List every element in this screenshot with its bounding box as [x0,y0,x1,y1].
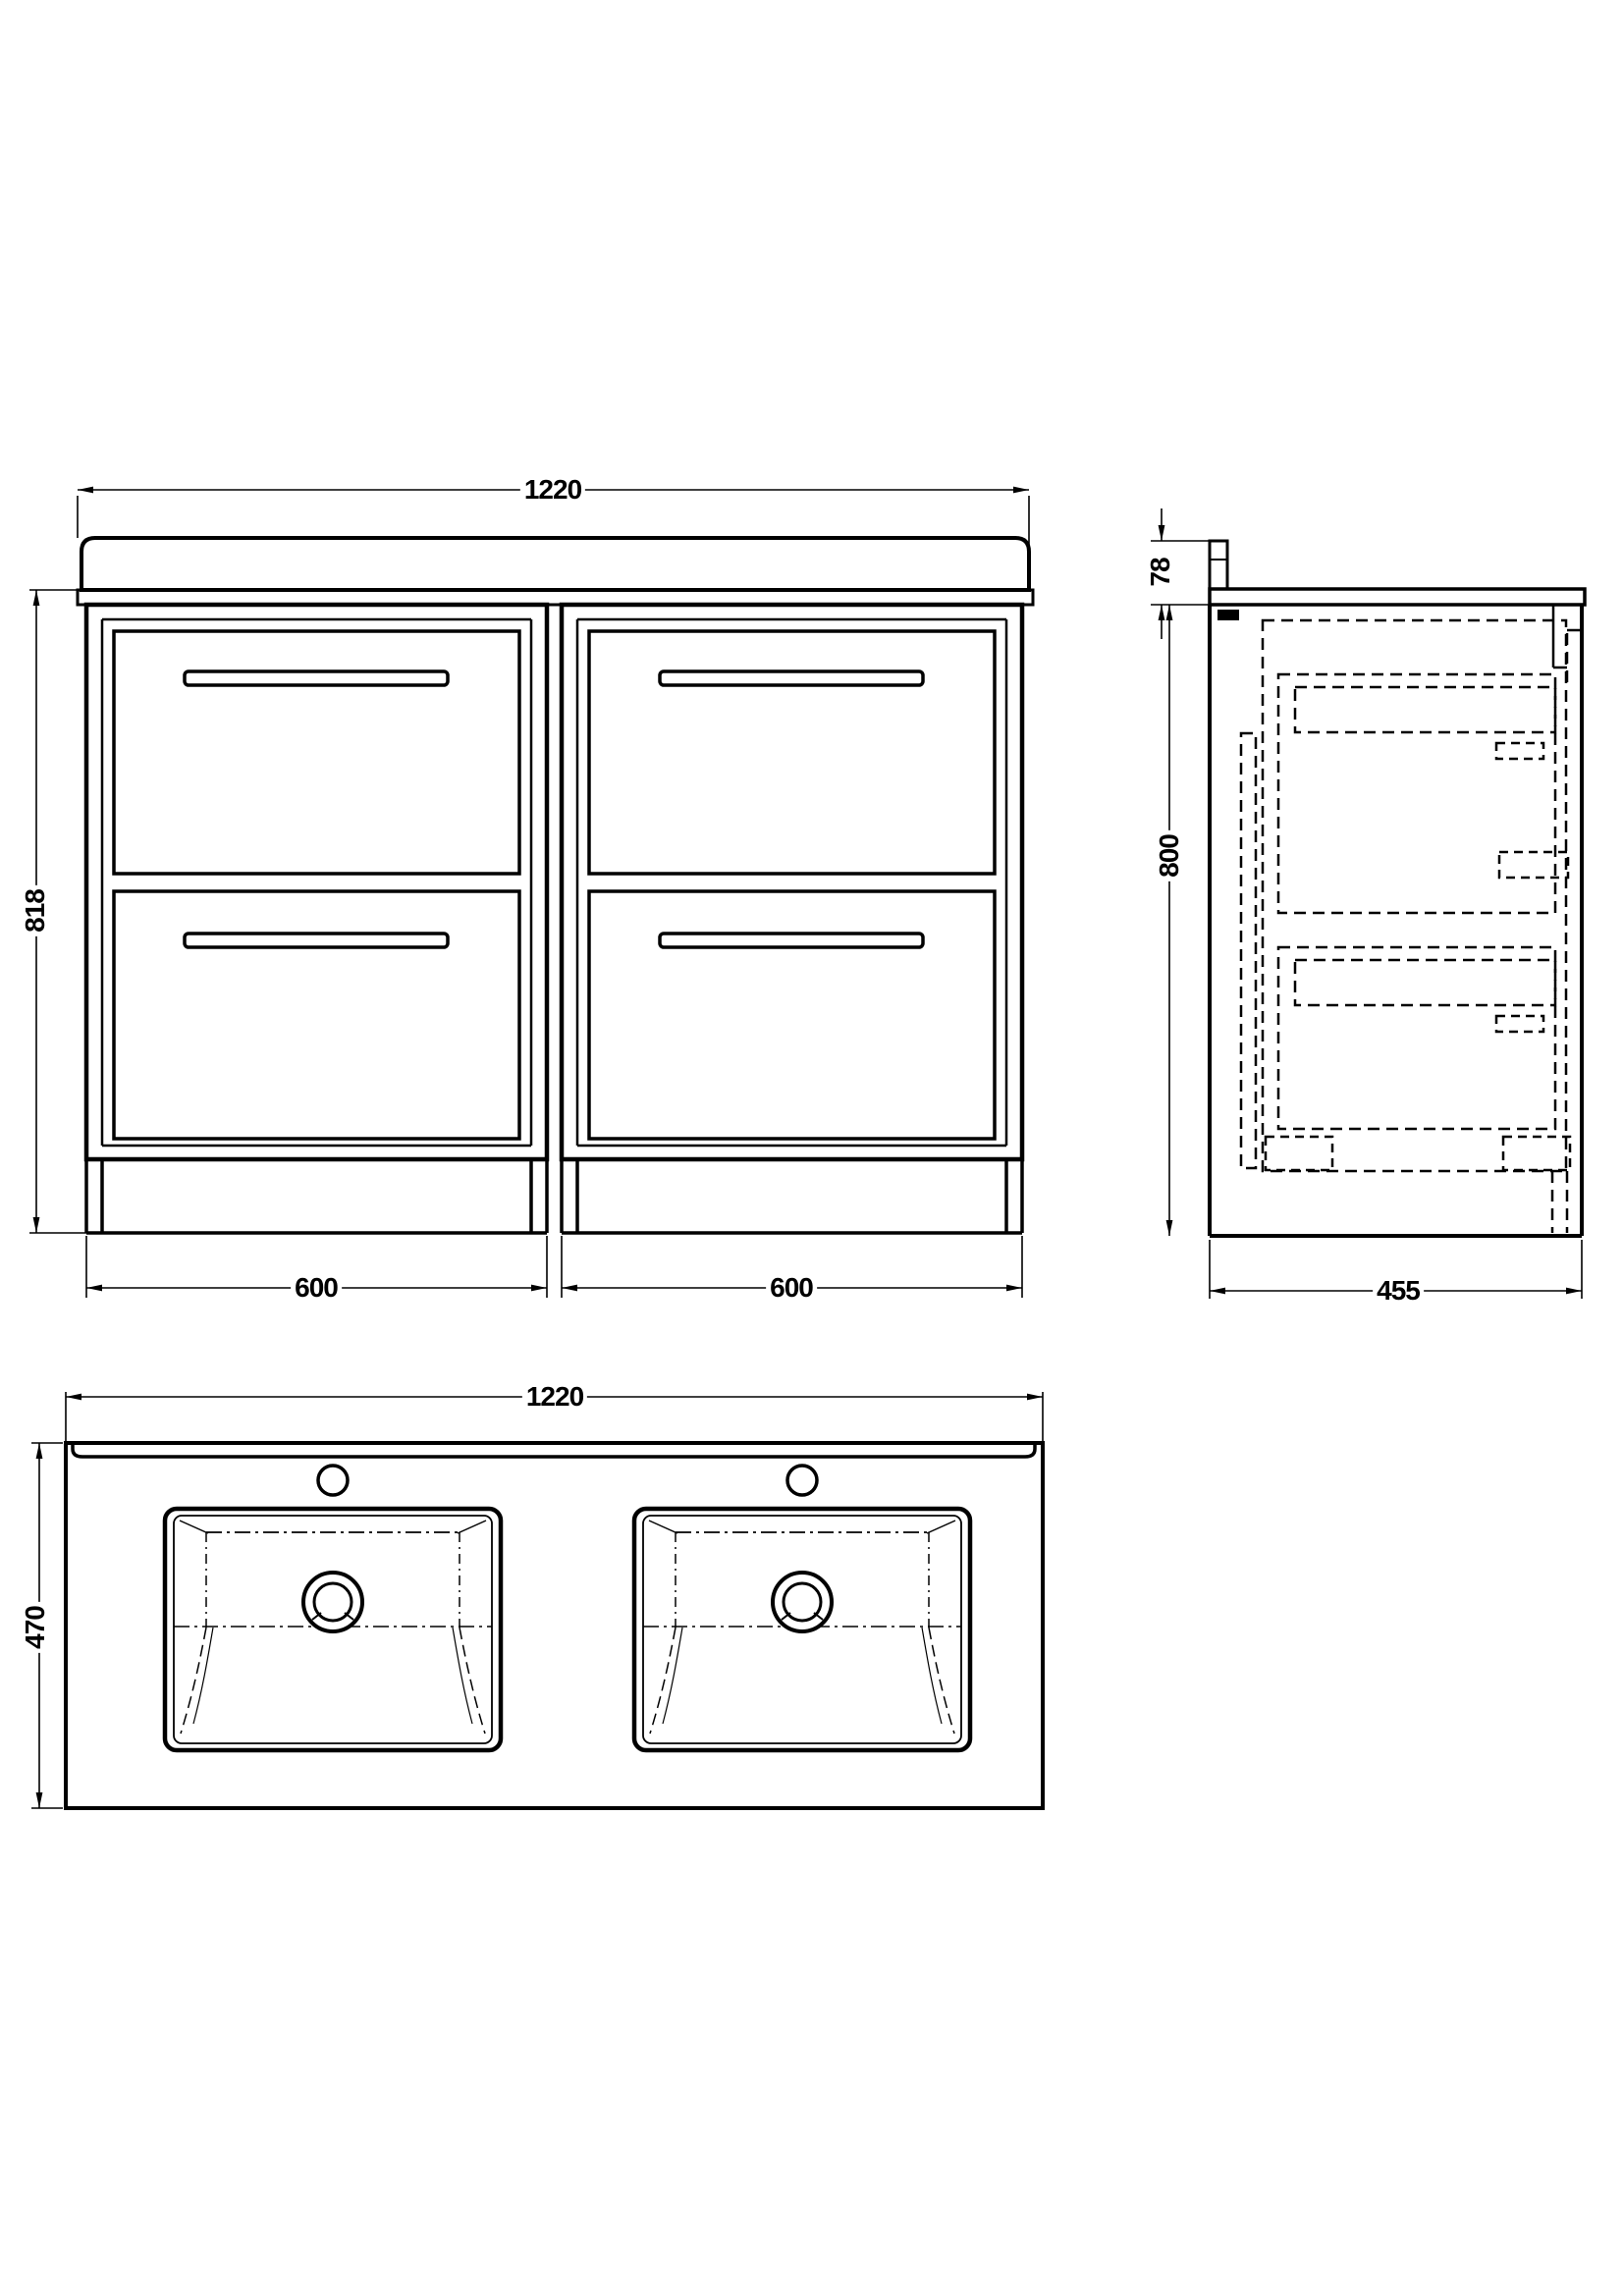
side-depth-dimension: 455 [1373,1276,1424,1306]
front-left-drawer-top [114,631,519,874]
front-dimensions [29,490,1029,1298]
front-left-drawer-bottom-handle [185,934,448,947]
side-hidden-detail [1241,620,1570,1233]
plan-tap-hole-left [318,1466,348,1495]
plan-worktop-outline [66,1443,1043,1808]
plan-view [31,1392,1043,1808]
front-right-plinth [562,1159,1022,1233]
front-height-dimension: 818 [21,885,50,936]
front-worktop [81,538,1029,590]
front-left-plinth [86,1159,547,1233]
front-right-module-dimension: 600 [766,1273,817,1303]
side-upstand [1210,541,1227,589]
technical-drawing-canvas: 1220 818 600 600 78 800 455 1220 470 [0,0,1623,2296]
plan-tap-hole-right [787,1466,817,1495]
side-worktop [1210,589,1585,605]
front-left-module-dimension: 600 [291,1273,342,1303]
front-left-drawer-top-handle [185,671,448,685]
front-right-drawer-top-handle [660,671,923,685]
front-right-drawer-top [589,631,995,874]
plan-basin-left [165,1509,501,1750]
front-right-cabinet [562,605,1022,1233]
plan-back-strip [73,1444,1035,1457]
side-upstand-dimension: 78 [1146,554,1175,590]
front-left-cabinet [86,605,547,1233]
drawing-linework [0,0,1623,2296]
plan-dimensions [31,1392,1043,1808]
front-view [29,490,1033,1298]
side-dimensions [1151,508,1582,1299]
side-view [1151,508,1585,1299]
plan-width-dimension: 1220 [522,1382,587,1412]
plan-depth-dimension: 470 [21,1602,50,1653]
plan-basin-right [634,1509,970,1750]
side-fixing-bracket [1217,610,1239,620]
front-left-drawer-bottom [114,891,519,1139]
front-width-dimension: 1220 [520,475,585,505]
front-right-drawer-bottom [589,891,995,1139]
front-right-drawer-bottom-handle [660,934,923,947]
side-height-dimension: 800 [1155,830,1184,881]
